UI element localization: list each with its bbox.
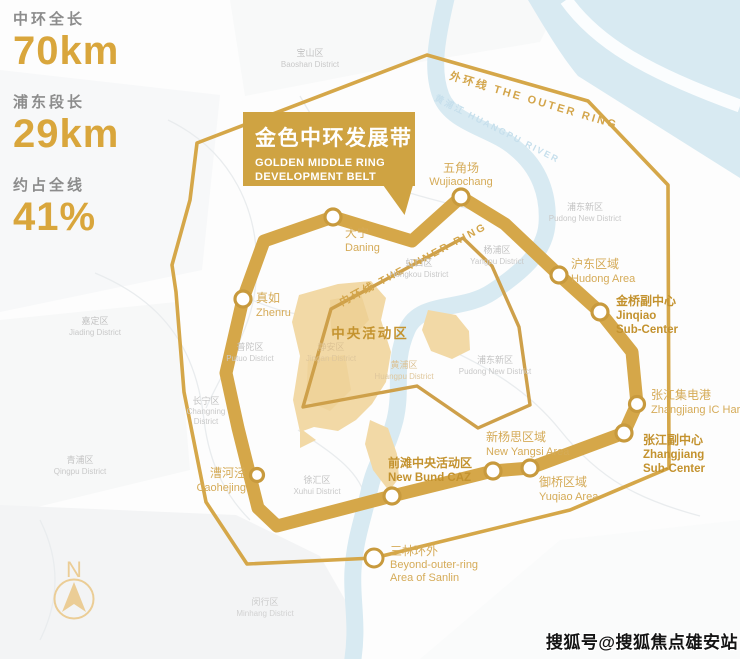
stat-total-length-label: 中环全长 bbox=[13, 8, 119, 29]
label-minhang-cn: 闵行区 bbox=[251, 596, 278, 607]
label-sanlin-en2: Area of Sanlin bbox=[390, 572, 459, 584]
station-node-zhenru bbox=[235, 291, 251, 307]
label-caohejing-en: Caohejing bbox=[196, 482, 246, 494]
stat-percentage: 约占全线 41% bbox=[13, 174, 119, 240]
station-node-new-bund bbox=[384, 488, 400, 504]
stat-percentage-value: 41% bbox=[13, 195, 119, 240]
label-daning-cn: 大宁 bbox=[345, 225, 369, 240]
label-new-bund-cn: 前滩中央活动区 bbox=[388, 455, 472, 470]
station-node-daning bbox=[325, 209, 341, 225]
label-pudong-center-en: Pudong New District bbox=[459, 367, 532, 376]
station-node-sanlin bbox=[365, 549, 383, 567]
banner-title-en-line1: GOLDEN MIDDLE RING bbox=[255, 157, 415, 171]
station-node-wujiaochang bbox=[453, 189, 469, 205]
label-baoshan-cn: 宝山区 bbox=[296, 47, 323, 58]
label-new-bund-en: New Bund CAZ bbox=[388, 472, 471, 484]
label-zhenru-en: Zhenru bbox=[256, 307, 291, 319]
label-sanlin-en1: Beyond-outer-ring bbox=[390, 559, 478, 571]
label-minhang-en: Minhang District bbox=[236, 609, 294, 618]
label-yangpu-cn: 杨浦区 bbox=[483, 244, 510, 255]
label-caohejing-cn: 漕河泾 bbox=[210, 466, 246, 480]
label-wujiaochang-cn: 五角场 bbox=[443, 161, 479, 175]
label-jiading-en: Jiading District bbox=[69, 328, 122, 337]
stat-pudong-length: 浦东段长 29km bbox=[13, 91, 119, 157]
label-jinqiao-en2: Sub-Center bbox=[616, 324, 679, 336]
label-changning-en1: Changning bbox=[187, 407, 226, 416]
label-daning-en: Daning bbox=[345, 242, 380, 254]
label-zhangjiang-sub-en1: Zhangjiang bbox=[643, 449, 704, 461]
label-zhenru-cn: 真如 bbox=[256, 290, 280, 305]
label-xuhui-en: Xuhui District bbox=[293, 487, 341, 496]
label-zhangjiang-sub-en2: Sub-Center bbox=[643, 463, 706, 475]
label-zhangjiang-ic-cn: 张江集电港 bbox=[651, 387, 711, 402]
label-jinqiao-en1: Jinqiao bbox=[616, 310, 656, 322]
label-jingan-en: Jingan District bbox=[306, 354, 357, 363]
banner-title-en-line2: DEVELOPMENT BELT bbox=[255, 171, 415, 185]
station-node-zhangjiang-sub bbox=[616, 425, 632, 441]
label-hudong-cn: 沪东区域 bbox=[571, 257, 619, 271]
label-jinqiao-cn: 金桥副中心 bbox=[615, 293, 676, 308]
label-jiading-cn: 嘉定区 bbox=[81, 315, 108, 326]
label-baoshan-en: Baoshan District bbox=[281, 60, 340, 69]
sohu-watermark: 搜狐号@搜狐焦点雄安站 bbox=[546, 628, 738, 653]
label-xuhui-cn: 徐汇区 bbox=[303, 474, 330, 485]
label-hongkou-en: Hongkou District bbox=[390, 270, 449, 279]
station-node-yuqiao bbox=[522, 460, 538, 476]
stat-pudong-length-label: 浦东段长 bbox=[13, 91, 119, 112]
label-zhangjiang-sub-cn: 张江副中心 bbox=[643, 432, 703, 447]
label-huangpu-en: Huangpu District bbox=[374, 372, 434, 381]
label-putuo-en: Putuo District bbox=[226, 354, 274, 363]
station-node-caohejing bbox=[251, 469, 264, 482]
stat-total-length: 中环全长 70km bbox=[13, 8, 119, 74]
caz-label: 中央活动区 bbox=[331, 325, 409, 341]
label-yuqiao-en: Yuqiao Area bbox=[539, 491, 599, 503]
stat-total-length-value: 70km bbox=[13, 29, 119, 74]
banner-title-en: GOLDEN MIDDLE RING DEVELOPMENT BELT bbox=[255, 157, 415, 185]
title-banner: 金色中环发展带 GOLDEN MIDDLE RING DEVELOPMENT B… bbox=[243, 112, 415, 186]
label-qingpu-cn: 青浦区 bbox=[66, 454, 93, 465]
label-zhangjiang-ic-en: Zhangjiang IC Harbor bbox=[651, 404, 740, 416]
label-jingan-cn: 静安区 bbox=[317, 341, 344, 352]
label-wujiaochang-en: Wujiaochang bbox=[429, 176, 492, 188]
label-sanlin-cn: 三林环外 bbox=[390, 544, 438, 558]
station-node-jinqiao bbox=[592, 304, 608, 320]
label-putuo-cn: 普陀区 bbox=[236, 341, 263, 352]
label-yuqiao-cn: 御桥区域 bbox=[539, 474, 587, 489]
compass-n-label: N bbox=[66, 557, 82, 582]
label-qingpu-en: Qingpu District bbox=[54, 467, 107, 476]
label-changning-cn: 长宁区 bbox=[192, 395, 219, 406]
golden-middle-ring-infographic: 外环线 THE OUTER RING 内环线 THE INNER RING 黄浦… bbox=[0, 0, 740, 659]
banner-title-cn: 金色中环发展带 bbox=[255, 122, 415, 152]
label-pudong-ne-cn: 浦东新区 bbox=[567, 201, 603, 212]
label-pudong-center-cn: 浦东新区 bbox=[477, 354, 513, 365]
label-pudong-ne-en: Pudong New District bbox=[549, 214, 622, 223]
label-new-yangsi-cn: 新杨思区域 bbox=[486, 429, 546, 444]
label-new-yangsi-en: New Yangsi Area bbox=[486, 446, 570, 458]
stat-percentage-label: 约占全线 bbox=[13, 174, 119, 195]
label-hongkou-cn: 虹口区 bbox=[405, 258, 432, 268]
stats-panel: 中环全长 70km 浦东段长 29km 约占全线 41% bbox=[13, 8, 119, 239]
label-yangpu-en: Yangpu District bbox=[470, 257, 524, 266]
stat-pudong-length-value: 29km bbox=[13, 112, 119, 157]
station-node-new-yangsi bbox=[485, 463, 501, 479]
label-huangpu-cn: 黄浦区 bbox=[390, 359, 417, 370]
station-node-zhangjiang-ic bbox=[630, 397, 645, 412]
label-hudong-en: Hudong Area bbox=[571, 273, 636, 285]
label-changning-en2: District bbox=[194, 417, 219, 426]
station-node-hudong bbox=[551, 267, 567, 283]
